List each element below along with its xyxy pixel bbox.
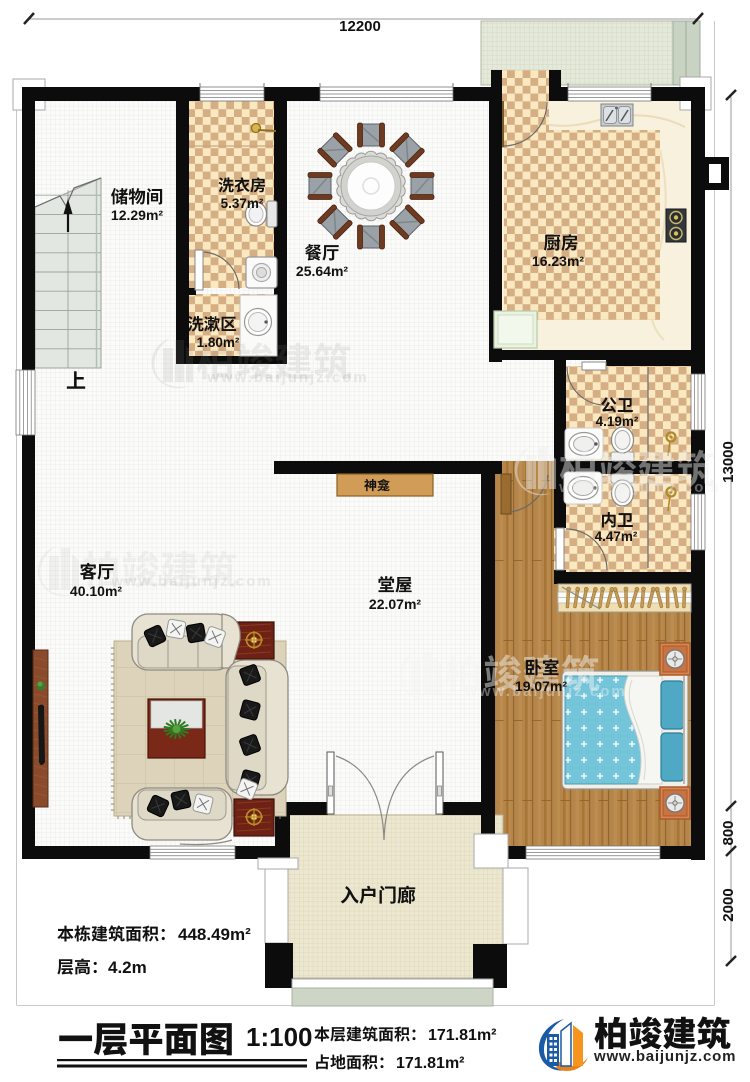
svg-text:12200: 12200 bbox=[339, 18, 381, 35]
svg-text:www.baijunjz.com: www.baijunjz.com bbox=[206, 369, 368, 386]
svg-text:www.baijunjz.com: www.baijunjz.com bbox=[558, 479, 720, 496]
svg-text:4.47m²: 4.47m² bbox=[595, 529, 638, 544]
svg-text:12.29m²: 12.29m² bbox=[111, 207, 163, 223]
svg-text:4.2m: 4.2m bbox=[108, 958, 147, 977]
svg-text:40.10m²: 40.10m² bbox=[70, 583, 122, 599]
svg-text:13000: 13000 bbox=[720, 441, 737, 483]
svg-text:4.19m²: 4.19m² bbox=[596, 414, 639, 429]
svg-text:25.64m²: 25.64m² bbox=[296, 263, 348, 279]
svg-text:22.07m²: 22.07m² bbox=[369, 596, 421, 612]
svg-text:1:100: 1:100 bbox=[246, 1022, 313, 1052]
svg-text:www.baijunjz.com: www.baijunjz.com bbox=[593, 1048, 736, 1065]
svg-text:www.baijunjz.com: www.baijunjz.com bbox=[110, 573, 272, 590]
svg-text:19.07m²: 19.07m² bbox=[515, 678, 567, 694]
svg-text:16.23m²: 16.23m² bbox=[532, 253, 584, 269]
svg-text:5.37m²: 5.37m² bbox=[221, 196, 264, 211]
svg-text:1.80m²: 1.80m² bbox=[197, 335, 240, 350]
svg-text:2000: 2000 bbox=[720, 888, 737, 921]
svg-text:171.81m²: 171.81m² bbox=[428, 1027, 497, 1044]
svg-text:171.81m²: 171.81m² bbox=[396, 1055, 465, 1072]
svg-text:800: 800 bbox=[720, 820, 737, 845]
svg-text:448.49m²: 448.49m² bbox=[178, 925, 251, 944]
